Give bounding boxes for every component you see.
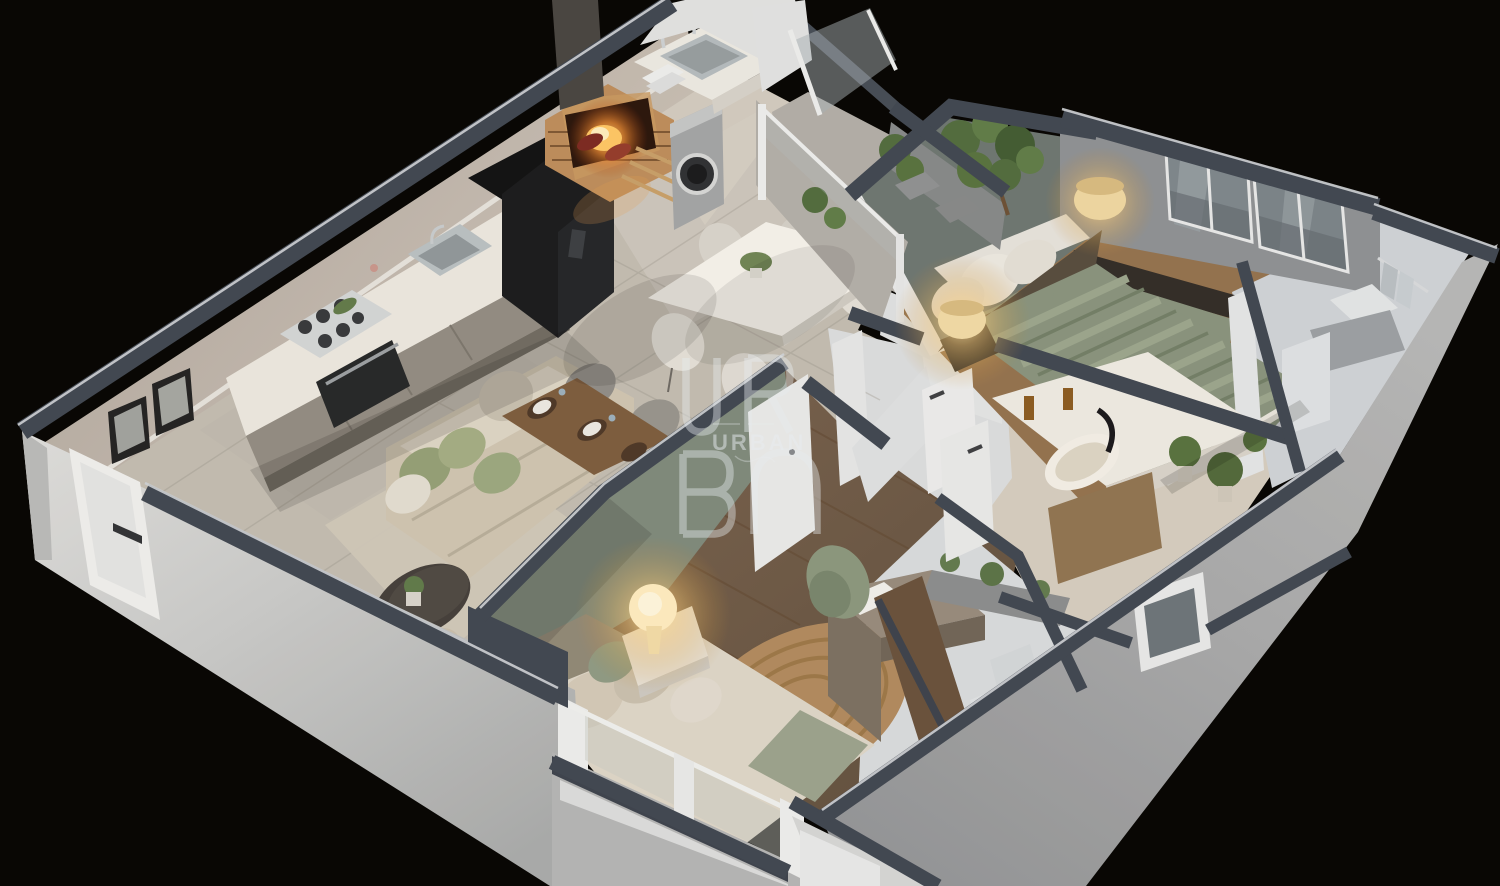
- svg-text:URBAN: URBAN: [712, 430, 806, 455]
